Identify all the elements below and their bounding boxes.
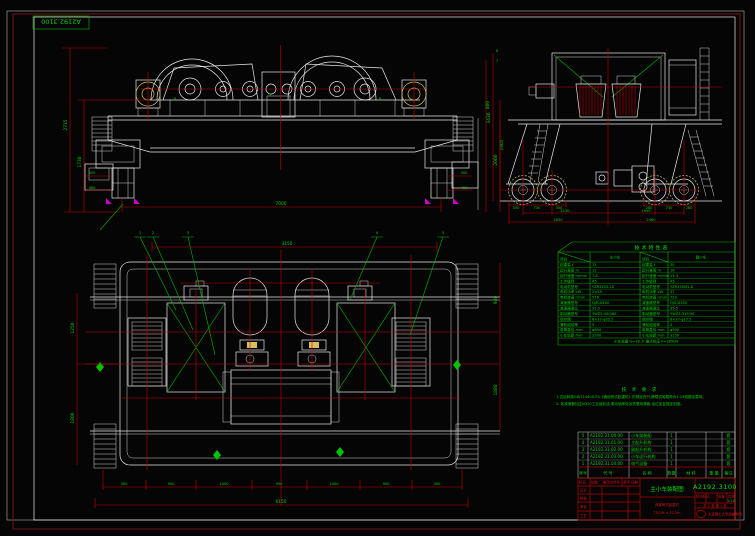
table-cell: 2×55 (592, 290, 602, 294)
table-cell: 副起升机构 (631, 446, 651, 452)
sign-label: 设计 (580, 488, 587, 493)
table-cell: 1 (670, 447, 673, 452)
table-cell: YZR250M1-8 (670, 285, 694, 289)
rev-header: 标记 (579, 480, 586, 485)
table-cell: 套 (726, 460, 730, 466)
scale-value: 1:10 (727, 499, 736, 503)
view-mark: B (379, 97, 382, 101)
table-cell: 3 (582, 447, 585, 452)
table-cell: 3150 (670, 334, 680, 338)
table-cell: 13.3 (670, 274, 678, 278)
table-cell: A2192.31.02.00 (590, 447, 623, 452)
dim-label: 940 (493, 296, 499, 304)
table-cell: 723 (670, 296, 677, 300)
table-cell: 6×37-φ17.5 (670, 317, 692, 321)
table-cell: 代 号 (603, 470, 613, 476)
table-cell: A2192.31.03.00 (590, 454, 623, 459)
dim-label: 900 (168, 482, 176, 486)
spec-header: 项目 (642, 257, 649, 262)
table-cell: 35.5 (670, 307, 678, 311)
mirrored-doc-label: A2192.3100 (33, 16, 89, 29)
table-cell: 套 (726, 432, 730, 438)
table-cell: 电机功率 kW (560, 289, 582, 294)
dim-label: 1730 (77, 156, 83, 167)
title-block: 标记 处数 更改文件号 签字 日期 设计 校核 审定 工艺 主小车装配图 双梁桥… (578, 478, 743, 520)
dim-label: 2830 (553, 218, 563, 222)
dim-label: 3150 (282, 241, 293, 247)
table-cell: 1 (670, 454, 673, 459)
dim-label: 730 (534, 206, 542, 210)
view-mark: D (269, 93, 272, 97)
table-cell: 电机转速 r/min (642, 295, 667, 300)
table-cell: 578 (592, 296, 600, 300)
table-cell: 工作级别 (560, 278, 575, 283)
dim-label: 460 (89, 186, 97, 190)
dim-label: 460 (461, 186, 469, 190)
plan-view: 1 2 3 4 5 3150 300 900 1400 950 1400 900… (70, 231, 500, 508)
rev-header: 日期 (631, 480, 638, 485)
table-cell: 31.5 (592, 307, 600, 311)
table-cell: 电机功率 kW (642, 289, 664, 294)
dim-label: 300 (434, 482, 442, 486)
table-cell: QJS-D335 (670, 301, 687, 305)
note-line: 2. 各减速器加注N320工业齿轮油,滚动轴承处涂钙基润滑脂,油位加至规定刻度。 (556, 401, 684, 406)
rev-header: 签字 (623, 480, 630, 485)
dim-label: 900 (383, 482, 391, 486)
table-cell: 起升速度 m/min (642, 273, 669, 278)
dim-label: 1400 (329, 482, 339, 486)
bom-table: 5A2192.31.00.00小车架装配1套4A2192.31.01.00主起升… (578, 432, 735, 478)
dim-label: 2000 (493, 154, 499, 165)
spec-header: 主小车 (610, 255, 621, 260)
table-cell: 钢丝绳 (642, 316, 653, 321)
dim-label: 3430 (486, 112, 492, 123)
table-cell: φ500 (670, 328, 680, 332)
table-cell: 减速器速比 (642, 306, 660, 311)
bom-rows: 5A2192.31.00.00小车架装配1套4A2192.31.01.00主起升… (578, 432, 735, 466)
table-cell: 电气设备 (631, 460, 647, 466)
front-dimensions: 7000 2715 1730 800 1905 300 460 300 460 … (62, 48, 505, 212)
view-mark: B (174, 97, 177, 101)
table-cell: 材 料 (686, 470, 696, 476)
drawing-number: A2192.3100 (693, 483, 737, 491)
table-cell: 6×37-φ32.5 (592, 317, 614, 321)
position-diamond (96, 360, 461, 460)
table-cell: A2192.31.01.00 (590, 440, 623, 445)
table-cell: 起升高度 m (642, 268, 662, 273)
table-cell: 5 (582, 433, 585, 438)
table-cell: 1 (582, 461, 585, 466)
table-cell: 电机转速 r/min (560, 295, 585, 300)
dim-label: 1880 (493, 384, 499, 395)
table-cell: 制动器型号 (642, 311, 660, 316)
ladder (92, 117, 473, 151)
table-cell: YWZ5-400/80 (592, 312, 617, 316)
table-cell: 4 (670, 323, 673, 327)
product-spec: 75/20t × 22.5m (654, 511, 682, 515)
table-cell: A5 (670, 279, 675, 283)
table-cell: 2 (582, 454, 585, 459)
table-cell: YWZ5-315/50 (670, 312, 695, 316)
spec-table-footer: 小车总重 G=28.7t 最大轮压 P=285kN (614, 339, 679, 344)
table-cell: 起重量 t (560, 262, 574, 267)
notes-title: 技 术 要 求 (622, 386, 659, 393)
bom-headers: 序号代 号名 称数量材 料重 量备注 (579, 470, 733, 476)
sign-label: 审定 (580, 504, 587, 509)
dim-label: 300 (461, 171, 469, 175)
table-cell: 卷筒直径 mm (560, 327, 583, 332)
table-cell: 套 (726, 446, 730, 452)
dim-label: 800 (485, 101, 491, 109)
table-cell: 滑轮组倍率 (642, 322, 660, 327)
table-cell: A2192.31.00.00 (590, 433, 623, 438)
table-cell: 1 (670, 433, 673, 438)
dim-label: 730 (666, 206, 674, 210)
table-cell: 小车轨距 mm (560, 333, 583, 338)
side-dimensions: 350 730 350 280 730 280 2130 1900 2830 2… (486, 49, 695, 224)
table-cell: A5 (592, 279, 597, 283)
dim-label: 280 (686, 206, 694, 210)
table-cell: 备注 (724, 470, 732, 476)
cad-sheet: { "sheet": { "mirrored_doc_no": "A2192.3… (0, 0, 755, 536)
dim-label: 2460 (646, 218, 656, 222)
dim-label: 6150 (276, 499, 287, 505)
dim-label: 300 (121, 482, 129, 486)
travel-drive (596, 166, 654, 192)
table-cell: 套 (726, 439, 730, 445)
table-cell: 名 称 (642, 470, 652, 476)
stage-label: 阶段标记 (696, 494, 710, 499)
dim-label: 350 (513, 206, 521, 210)
note-line: 1.试运转按GB/T14405-93《通用桥式起重机》的规定进行,静载试验载荷为… (556, 394, 706, 399)
table-cell: 钢丝绳 (560, 316, 571, 321)
company-logo (697, 511, 706, 518)
sheet-info: 共 1 张 第 1 张 (703, 503, 727, 508)
leader-line (100, 204, 123, 230)
technical-notes: 技 术 要 求 1.试运转按GB/T14405-93《通用桥式起重机》的规定进行… (556, 386, 706, 406)
table-cell: 起升高度 m (560, 268, 580, 273)
dim-label: 1250 (70, 322, 76, 333)
view-mark: 6 (496, 49, 499, 53)
plan-dimensions: 3150 300 900 1400 950 1400 900 300 6150 … (70, 241, 500, 508)
table-cell: YZR315S-10 (592, 285, 615, 289)
spec-header: 项目 (560, 257, 567, 262)
dim-label: 1800 (70, 412, 76, 423)
callout-number: 1 (139, 231, 141, 235)
table-cell: 起重量 t (642, 262, 656, 267)
table-cell: 卷筒直径 mm (642, 327, 665, 332)
table-cell: 工作级别 (642, 278, 657, 283)
company-name: 大连理工大学机械学院 (708, 512, 743, 517)
table-cell: 主起升机构 (631, 439, 651, 445)
table-cell: 减速器速比 (560, 306, 578, 311)
spec-table-rows: 起重量 t75起重量 t20起升高度 m12起升高度 m16起升速度 m/min… (558, 262, 735, 338)
balloon-callouts: 1 2 3 4 5 (134, 231, 449, 355)
table-cell: 75 (592, 263, 597, 267)
front-view: 7000 2715 1730 800 1905 300 460 300 460 … (62, 45, 505, 230)
dim-label: 2130 (560, 209, 570, 213)
table-cell: 套 (726, 453, 730, 459)
sign-label: 工艺 (580, 513, 587, 518)
table-cell: 小车轮距 mm (642, 333, 665, 338)
table-cell: 重 量 (709, 470, 719, 476)
dim-label: 950 (276, 482, 284, 486)
rev-header: 处数 (591, 480, 598, 485)
table-cell: 序号 (579, 470, 587, 476)
table-cell: 起升速度 m/min (560, 273, 587, 278)
callout-number: 4 (376, 231, 379, 235)
spec-table: 技术特性表 项目 主小车 项目 副小车 起重量 t75起重量 t20起升高度 m… (558, 242, 735, 345)
table-cell: 7.8 (592, 274, 598, 278)
drawing-canvas: A2192.3100 (0, 0, 755, 536)
dim-label: 1400 (219, 482, 229, 486)
view-mark: 7 (496, 59, 498, 63)
table-cell: φ800 (592, 328, 602, 332)
table-cell: 20 (670, 263, 675, 267)
table-cell: 电动机型号 (560, 284, 578, 289)
callout-number: 3 (187, 231, 189, 235)
table-cell: 制动器型号 (560, 311, 578, 316)
table-cell: 1 (670, 440, 673, 445)
dim-label: 7000 (276, 201, 287, 207)
dim-label: 2715 (63, 119, 69, 130)
dim-label: 1900 (641, 209, 651, 213)
drawing-title: 主小车装配图 (650, 485, 684, 493)
table-cell: 16 (670, 269, 675, 273)
table-cell: 12 (592, 269, 597, 273)
table-cell: 滑轮组倍率 (560, 322, 578, 327)
side-view: 350 730 350 280 730 280 2130 1900 2830 2… (486, 48, 722, 225)
table-cell: 37 (670, 290, 675, 294)
rev-header: 更改文件号 (603, 480, 621, 485)
product-name: 双梁桥式起重机 (655, 502, 679, 507)
sign-label: 校核 (580, 496, 587, 501)
table-cell: 电动机型号 (642, 284, 660, 289)
callout-number: 2 (152, 231, 154, 235)
spec-table-title: 技术特性表 (634, 245, 669, 252)
spec-header: 副小车 (696, 255, 707, 260)
table-cell: 减速器型号 (642, 300, 660, 305)
weight-label: 质量 (718, 494, 725, 499)
table-cell: 4 (582, 440, 585, 445)
table-cell: A2192.31.04.00 (590, 461, 623, 466)
callout-number: 5 (442, 231, 444, 235)
mirrored-doc-text: A2192.3100 (41, 18, 81, 26)
scale-label: 比例 (728, 494, 735, 499)
table-cell: 小车架装配 (631, 432, 651, 438)
table-cell: 数量 (667, 470, 675, 476)
table-cell: 5 (592, 323, 594, 327)
table-cell: 减速器型号 (560, 300, 578, 305)
table-cell: QJR-D400 (592, 301, 610, 305)
dim-label: 300 (89, 171, 97, 175)
table-cell: 1 (670, 461, 673, 466)
table-cell: 2500 (592, 334, 602, 338)
table-cell: 小车运行机构 (631, 453, 656, 459)
